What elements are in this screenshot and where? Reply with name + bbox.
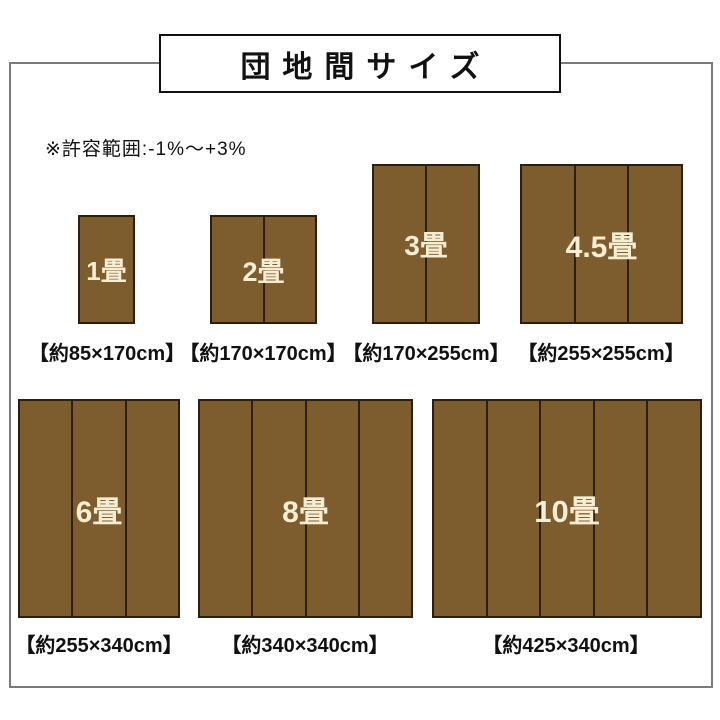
- mat-panel: [125, 401, 178, 616]
- mat-size-caption: 【約170×170cm】: [179, 337, 346, 366]
- mat-panel: [80, 217, 133, 322]
- mat-panel: [212, 217, 263, 322]
- mat-size-caption: 【約425×340cm】: [482, 629, 649, 658]
- mat-rect-2jo: 2畳: [210, 215, 317, 324]
- mat-panel: [425, 166, 478, 322]
- mat-rect-3jo: 3畳: [372, 164, 480, 324]
- mat-size-caption: 【約170×255cm】: [342, 337, 509, 366]
- mat-panel: [71, 401, 124, 616]
- mat-rect-10jo: 10畳: [432, 399, 702, 618]
- mat-size-caption: 【約255×255cm】: [517, 337, 684, 366]
- mat-panel: [522, 166, 574, 322]
- mat-panel: [374, 166, 425, 322]
- mat-panel: [539, 401, 593, 616]
- mat-size-caption: 【約340×340cm】: [221, 629, 388, 658]
- page-title: 団地間サイズ: [228, 42, 491, 86]
- mat-panel: [646, 401, 700, 616]
- mat-panel: [305, 401, 358, 616]
- title-box: 団地間サイズ: [159, 34, 561, 93]
- mat-panel: [593, 401, 647, 616]
- mat-panel: [20, 401, 71, 616]
- mat-panel: [251, 401, 304, 616]
- size-chart-page: 団地間サイズ ※許容範囲:-1%〜+3% 1畳 【約85×170cm】 2畳 【…: [0, 0, 720, 720]
- tolerance-note: ※許容範囲:-1%〜+3%: [45, 134, 247, 161]
- mat-panel: [200, 401, 251, 616]
- mat-rect-4-5jo: 4.5畳: [520, 164, 683, 324]
- mat-panel: [358, 401, 411, 616]
- mat-rect-8jo: 8畳: [198, 399, 413, 618]
- mat-panel: [434, 401, 486, 616]
- mat-panel: [263, 217, 316, 322]
- mat-rect-6jo: 6畳: [18, 399, 180, 618]
- mat-rect-1jo: 1畳: [78, 215, 135, 324]
- mat-size-caption: 【約255×340cm】: [15, 629, 182, 658]
- mat-panel: [574, 166, 628, 322]
- mat-panel: [486, 401, 540, 616]
- mat-size-caption: 【約85×170cm】: [29, 337, 185, 366]
- mat-panel: [627, 166, 681, 322]
